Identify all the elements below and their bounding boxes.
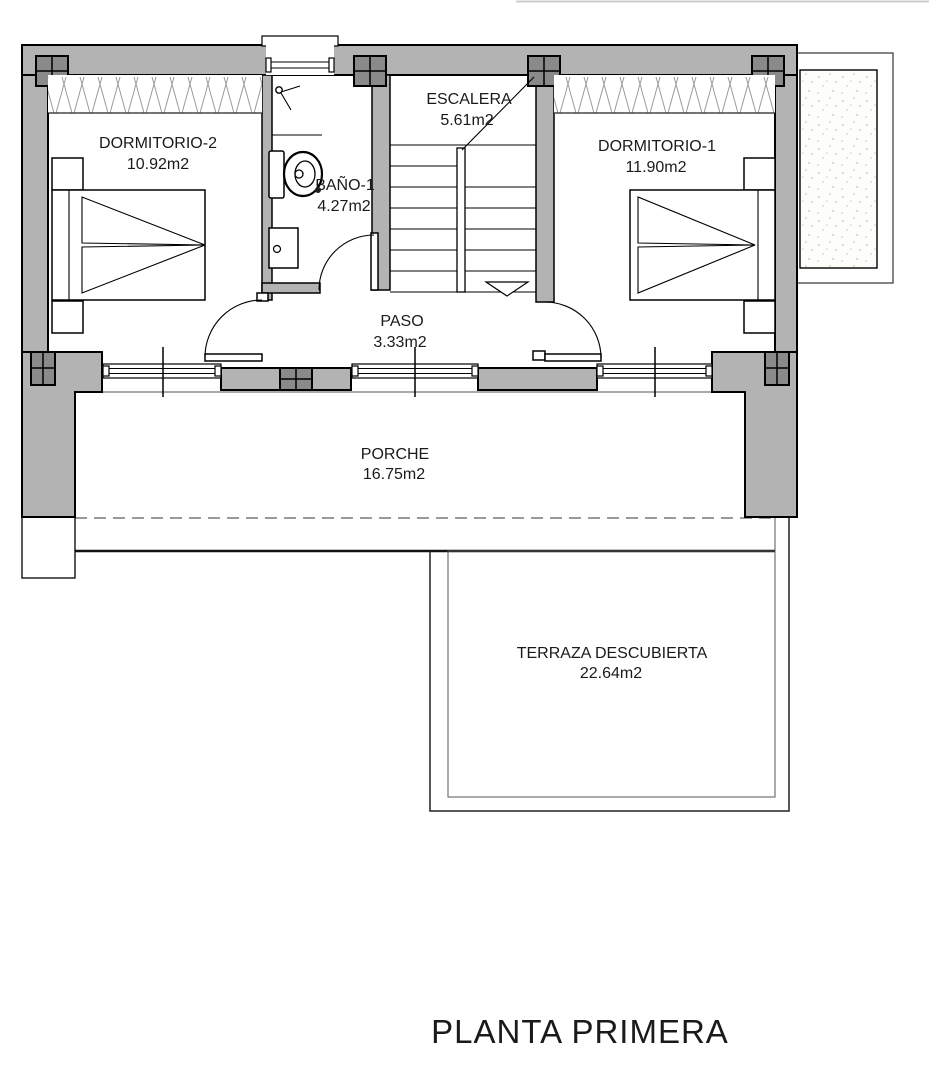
floor-plan-drawing: DORMITORIO-2 10.92m2 BAÑO-1 4.27m2 ESCAL…: [0, 0, 929, 1080]
label-paso: PASO: [380, 313, 423, 330]
bed-dormitorio-2: [52, 158, 205, 333]
sink-vanity: [269, 228, 298, 268]
gravel-area: [800, 70, 877, 268]
wardrobe-dormitorio-2: [48, 75, 262, 113]
bathroom-door: [319, 233, 378, 290]
nightstand: [744, 301, 775, 333]
nightstand: [744, 158, 775, 190]
room-labels: DORMITORIO-2 10.92m2 BAÑO-1 4.27m2 ESCAL…: [99, 91, 716, 682]
area-terraza: 22.64m2: [580, 665, 642, 682]
window-dormitorio-1: [597, 347, 712, 397]
area-paso: 3.33m2: [373, 334, 426, 351]
door-dormitorio-1: [533, 302, 601, 361]
terrace-deck: [430, 517, 789, 811]
area-porche: 16.75m2: [363, 466, 425, 483]
area-dormitorio-2: 10.92m2: [127, 156, 189, 173]
nightstand: [52, 158, 83, 190]
label-terraza: TERRAZA DESCUBIERTA: [517, 645, 708, 662]
window-dormitorio-2: [103, 347, 221, 397]
bathroom-window: [262, 36, 338, 75]
label-escalera: ESCALERA: [426, 91, 512, 108]
terrace-outer-border: [430, 517, 789, 811]
label-dormitorio-1: DORMITORIO-1: [598, 138, 716, 155]
shower-symbol-icon: [276, 86, 300, 110]
stair-down-arrow-icon: [486, 282, 528, 296]
toilet: [269, 151, 322, 198]
nightstand: [52, 301, 83, 333]
stair-divider: [457, 148, 465, 292]
plan-title: PLANTA PRIMERA: [431, 1013, 729, 1050]
label-porche: PORCHE: [361, 446, 429, 463]
porch-left-planter: [22, 517, 75, 578]
door-dormitorio-2: [205, 293, 268, 361]
label-dormitorio-2: DORMITORIO-2: [99, 135, 217, 152]
area-dormitorio-1: 11.90m2: [625, 159, 686, 176]
label-bano-1: BAÑO-1: [315, 174, 375, 194]
side-patio: [797, 53, 893, 283]
floor-plan-page: DORMITORIO-2 10.92m2 BAÑO-1 4.27m2 ESCAL…: [0, 0, 929, 1080]
area-bano-1: 4.27m2: [317, 198, 370, 215]
wardrobe-dormitorio-1: [554, 75, 775, 113]
window-escalera: [352, 347, 478, 397]
area-escalera: 5.61m2: [440, 112, 493, 129]
staircase: [390, 77, 536, 296]
bed-dormitorio-1: [630, 158, 775, 333]
